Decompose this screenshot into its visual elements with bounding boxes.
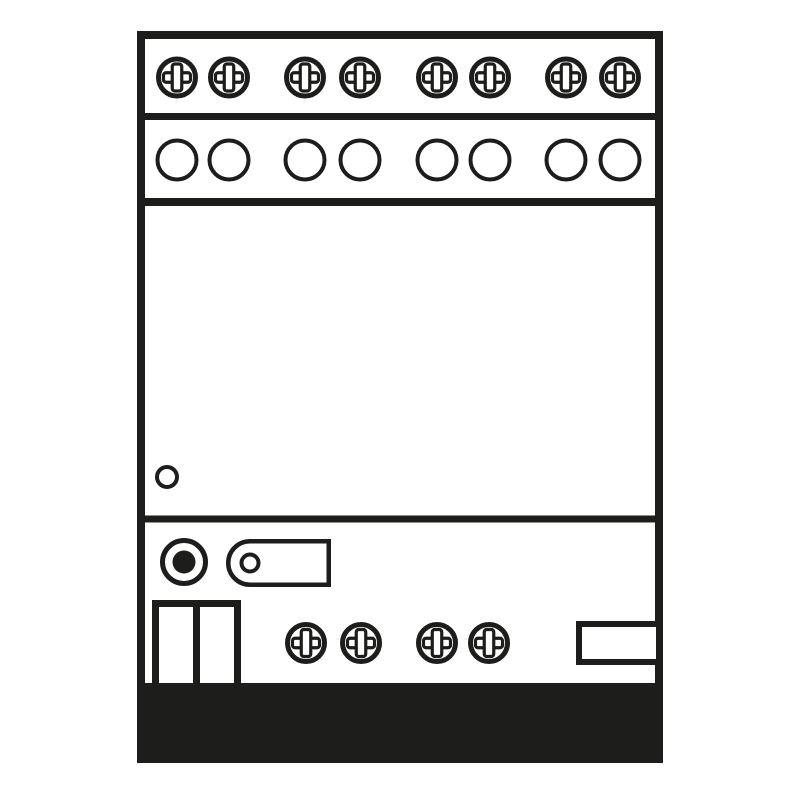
screw-terminal-icon [211,59,248,96]
technical-drawing-page [0,0,800,800]
terminal-hole-icon [547,141,586,180]
terminal-hole-icon [158,141,197,180]
terminal-hole-icon [210,141,249,180]
screw-terminal-icon [159,59,196,96]
screw-terminal-icon [471,625,508,662]
terminal-hole-icon [341,141,380,180]
screw-terminal-icon [342,59,379,96]
aux-connector [579,624,659,662]
terminal-hole-icon [601,141,640,180]
terminal-hole-icon [471,141,510,180]
din-rail-device-diagram [0,0,800,800]
front-panel [157,467,177,487]
screw-terminal-icon [343,625,380,662]
label-tab-hole [242,555,259,572]
screw-terminal-icon [288,625,325,662]
terminal-hole-icon [286,141,325,180]
screw-terminal-icon [472,59,509,96]
programming-button-dot [173,551,196,574]
din-rail-section [137,683,663,763]
screw-terminal-icon [419,625,456,662]
screw-terminal-icon [419,59,456,96]
status-led-icon [157,467,177,487]
din-rail-bar [137,683,663,763]
screw-terminal-icon [548,59,585,96]
screw-terminal-icon [287,59,324,96]
screw-terminal-icon [602,59,639,96]
terminal-hole-icon [418,141,457,180]
